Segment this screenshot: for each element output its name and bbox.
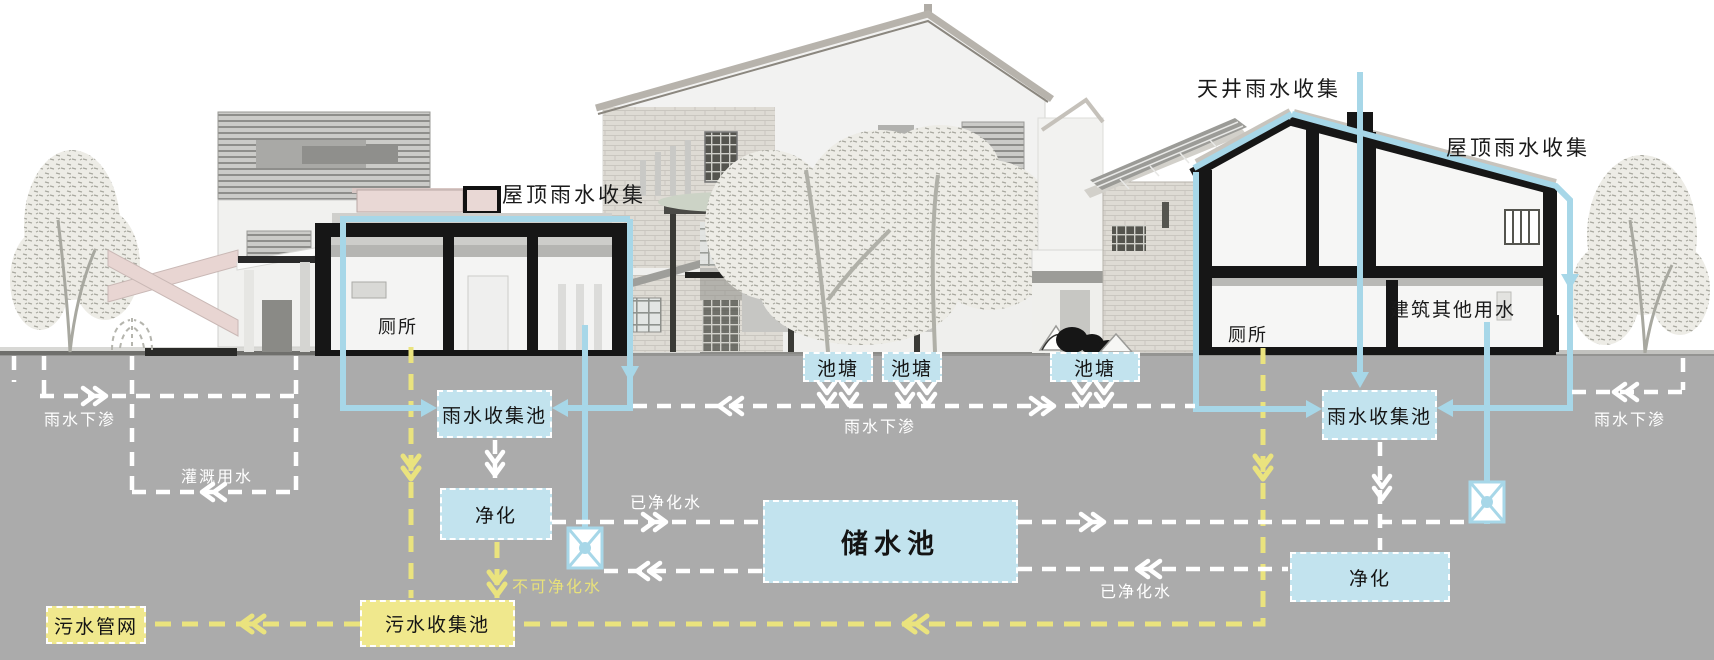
- pond-box-1: 池塘: [803, 352, 873, 382]
- valve-left-icon: [568, 528, 602, 568]
- pond-box-3: 池塘: [1050, 352, 1140, 382]
- tree-right: [1570, 155, 1710, 353]
- fountain-icon: [112, 318, 152, 350]
- valve-right-icon: [1470, 482, 1504, 522]
- pond-box-2: 池塘: [882, 352, 942, 382]
- label-purified-left: 已净化水: [630, 493, 702, 512]
- tree-left: [10, 150, 140, 352]
- storage-pool-box: 储水池: [763, 500, 1018, 583]
- sewage-network-box: 污水管网: [46, 606, 146, 644]
- rain-pool-right-box: 雨水收集池: [1322, 390, 1437, 440]
- label-unpurifiable: 不可净化水: [512, 577, 602, 596]
- label-irrigation: 灌溉用水: [181, 467, 253, 486]
- label-roof-rain-left: 屋顶雨水收集: [502, 183, 646, 208]
- label-toilet-right: 厕所: [1228, 325, 1268, 347]
- label-courtyard-rain: 天井雨水收集: [1197, 77, 1341, 102]
- rain-pool-left-box: 雨水收集池: [437, 390, 552, 438]
- sewage-pool-box: 污水收集池: [360, 600, 515, 647]
- label-infiltration-middle: 雨水下渗: [844, 417, 916, 436]
- label-infiltration-left: 雨水下渗: [44, 410, 116, 429]
- water-recycling-section-diagram: 屋顶雨水收集 天井雨水收集 屋顶雨水收集 厕所 厕所 建筑其他用水 雨水下渗 灌…: [0, 0, 1714, 660]
- purify-right-box: 净化: [1290, 552, 1450, 602]
- label-roof-rain-right: 屋顶雨水收集: [1446, 136, 1590, 161]
- label-infiltration-right: 雨水下渗: [1594, 410, 1666, 429]
- label-building-other-water: 建筑其他用水: [1390, 299, 1516, 322]
- label-purified-right: 已净化水: [1100, 582, 1172, 601]
- label-toilet-left: 厕所: [378, 317, 418, 339]
- left-section-building: [315, 188, 628, 356]
- purify-left-box: 净化: [440, 488, 552, 540]
